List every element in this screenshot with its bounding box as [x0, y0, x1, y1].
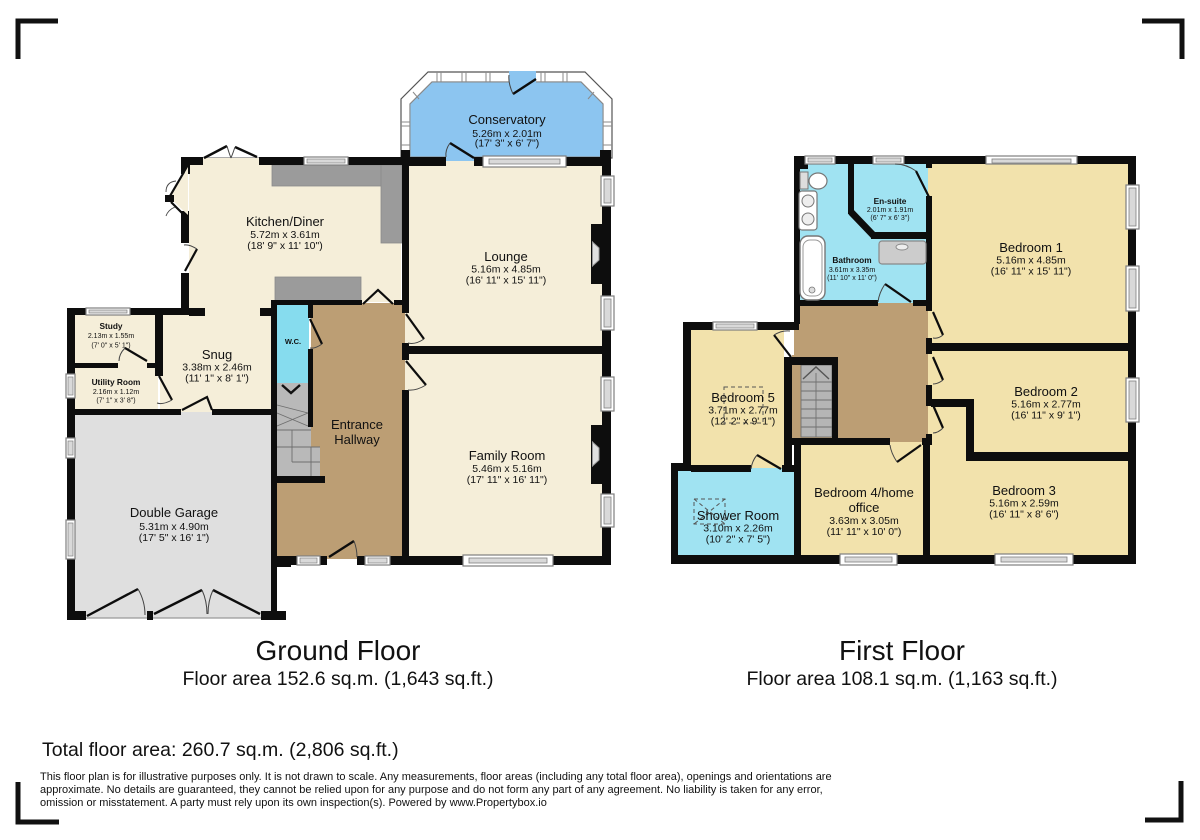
svg-text:Family Room: Family Room	[469, 448, 546, 463]
svg-text:approximate. No details are gu: approximate. No details are guaranteed, …	[40, 784, 823, 796]
svg-text:office: office	[849, 500, 880, 515]
svg-text:omission or misstatement. A pa: omission or misstatement. A party must r…	[40, 797, 547, 809]
svg-text:Floor area 152.6 sq.m. (1,643: Floor area 152.6 sq.m. (1,643 sq.ft.)	[182, 668, 493, 690]
svg-text:(17' 3" x 6' 7"): (17' 3" x 6' 7")	[475, 138, 540, 150]
svg-text:(16' 11" x 15' 11"): (16' 11" x 15' 11")	[466, 275, 547, 287]
svg-text:(6' 7" x 6' 3"): (6' 7" x 6' 3")	[870, 215, 909, 222]
svg-text:(17' 11" x 16' 11"): (17' 11" x 16' 11")	[467, 474, 548, 486]
svg-text:3.61m x 3.35m: 3.61m x 3.35m	[829, 267, 875, 274]
svg-text:Hallway: Hallway	[334, 432, 380, 447]
svg-text:(16' 11" x 9' 1"): (16' 11" x 9' 1")	[1011, 410, 1081, 422]
svg-text:Kitchen/Diner: Kitchen/Diner	[246, 214, 325, 229]
svg-text:Bedroom 5: Bedroom 5	[711, 390, 775, 405]
svg-text:Lounge: Lounge	[484, 249, 527, 264]
svg-text:2.13m x 1.55m: 2.13m x 1.55m	[88, 333, 134, 340]
svg-text:En-suite: En-suite	[874, 196, 907, 206]
svg-text:(11' 10" x 11' 0"): (11' 10" x 11' 0")	[827, 275, 877, 282]
svg-text:Entrance: Entrance	[331, 417, 383, 432]
svg-text:Bathroom: Bathroom	[832, 255, 871, 265]
svg-text:(16' 11" x 15' 11"): (16' 11" x 15' 11")	[991, 266, 1072, 278]
svg-text:Conservatory: Conservatory	[468, 112, 546, 127]
svg-text:(11' 1" x 8' 1"): (11' 1" x 8' 1")	[185, 373, 249, 385]
svg-text:Bedroom 2: Bedroom 2	[1014, 384, 1078, 399]
svg-text:(16' 11" x 8' 6"): (16' 11" x 8' 6")	[989, 509, 1059, 521]
svg-text:(18' 9" x 11' 10"): (18' 9" x 11' 10")	[247, 240, 322, 252]
svg-text:(7' 1" x 3' 8"): (7' 1" x 3' 8")	[96, 398, 135, 405]
svg-text:First Floor: First Floor	[839, 635, 965, 666]
svg-text:(11' 11" x 10' 0"): (11' 11" x 10' 0")	[827, 526, 902, 538]
svg-text:Utility Room: Utility Room	[92, 377, 141, 387]
svg-text:Floor area 108.1 sq.m. (1,163: Floor area 108.1 sq.m. (1,163 sq.ft.)	[746, 668, 1057, 690]
svg-text:2.16m x 1.12m: 2.16m x 1.12m	[93, 389, 139, 396]
svg-text:2.01m x 1.91m: 2.01m x 1.91m	[867, 207, 913, 214]
svg-text:Total floor area: 260.7 sq.m.: Total floor area: 260.7 sq.m. (2,806 sq.…	[42, 739, 399, 761]
svg-text:Bedroom 4/home: Bedroom 4/home	[814, 485, 914, 500]
svg-text:(12' 2" x 9' 1"): (12' 2" x 9' 1")	[711, 416, 776, 428]
svg-text:Shower Room: Shower Room	[697, 508, 779, 523]
svg-text:W.C.: W.C.	[285, 337, 301, 346]
svg-text:(17' 5" x 16' 1"): (17' 5" x 16' 1")	[139, 532, 209, 544]
svg-text:Bedroom 3: Bedroom 3	[992, 483, 1056, 498]
svg-text:This floor plan is for illustr: This floor plan is for illustrative purp…	[40, 771, 832, 783]
svg-text:(10' 2" x 7' 5"): (10' 2" x 7' 5")	[706, 534, 771, 546]
svg-text:Double Garage: Double Garage	[130, 505, 218, 520]
svg-text:Bedroom 1: Bedroom 1	[999, 240, 1063, 255]
svg-text:Study: Study	[99, 321, 122, 331]
svg-text:Snug: Snug	[202, 347, 232, 362]
svg-text:(7' 0" x 5' 1"): (7' 0" x 5' 1")	[91, 343, 130, 350]
svg-text:Ground Floor: Ground Floor	[256, 635, 421, 666]
